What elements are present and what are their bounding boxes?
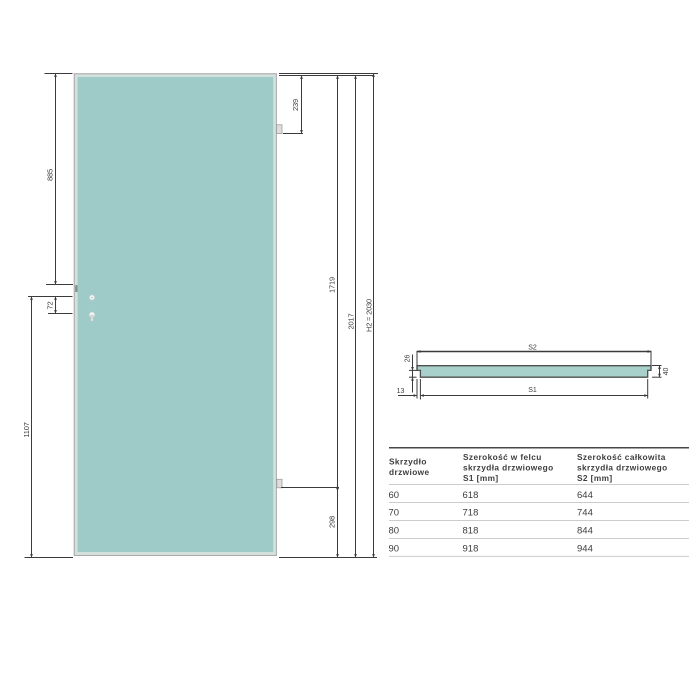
svg-text:1107: 1107: [22, 422, 31, 437]
svg-text:Szerokość całkowita: Szerokość całkowita: [577, 452, 666, 462]
svg-text:90: 90: [389, 543, 400, 554]
svg-text:72: 72: [46, 302, 55, 310]
svg-text:239: 239: [291, 99, 300, 111]
svg-text:skrzydła drzwiowego: skrzydła drzwiowego: [577, 463, 668, 473]
svg-text:1719: 1719: [328, 277, 337, 293]
svg-text:13: 13: [397, 388, 405, 395]
svg-text:718: 718: [463, 508, 479, 519]
svg-text:skrzydła drzwiowego: skrzydła drzwiowego: [463, 463, 554, 473]
svg-text:944: 944: [577, 543, 593, 554]
svg-text:40: 40: [663, 368, 670, 376]
svg-text:S2 [mm]: S2 [mm]: [577, 473, 613, 483]
svg-text:S1: S1: [528, 387, 537, 394]
svg-text:H2 = 2030: H2 = 2030: [365, 299, 374, 332]
svg-text:S1 [mm]: S1 [mm]: [463, 473, 499, 483]
svg-text:298: 298: [328, 516, 337, 528]
svg-text:26: 26: [405, 355, 412, 363]
svg-text:drzwiowe: drzwiowe: [389, 467, 430, 477]
svg-text:Szerokość w felcu: Szerokość w felcu: [463, 452, 542, 462]
svg-text:918: 918: [463, 543, 479, 554]
svg-text:618: 618: [463, 490, 479, 501]
svg-text:2017: 2017: [347, 314, 356, 330]
svg-text:885: 885: [46, 169, 55, 181]
svg-text:Skrzydło: Skrzydło: [389, 457, 427, 467]
svg-text:644: 644: [577, 490, 593, 501]
svg-text:S2: S2: [528, 345, 537, 352]
svg-text:60: 60: [389, 490, 400, 501]
svg-text:70: 70: [389, 508, 400, 519]
svg-text:844: 844: [577, 526, 593, 537]
svg-text:80: 80: [389, 526, 400, 537]
svg-text:818: 818: [463, 526, 479, 537]
svg-text:744: 744: [577, 508, 593, 519]
